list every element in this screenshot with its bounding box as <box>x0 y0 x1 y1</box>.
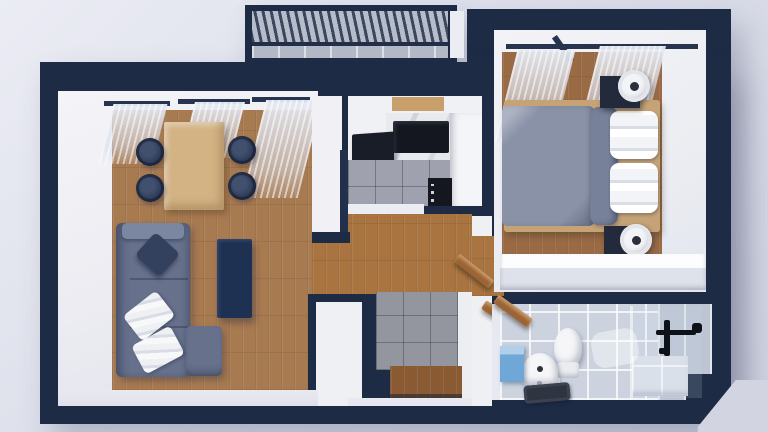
dining-table <box>164 122 224 210</box>
white-pillow-stack <box>610 111 658 159</box>
balcony-door-threshold <box>392 97 444 111</box>
sofa-seam <box>130 278 188 280</box>
sofa-chaise <box>186 326 222 376</box>
living-kitchen-wall <box>312 96 342 236</box>
balcony-floor <box>252 46 448 58</box>
dining-chair <box>136 174 164 202</box>
bedroom-dresser <box>500 254 706 290</box>
dining-chair <box>228 172 256 200</box>
living-room-south-wall-face <box>58 390 318 406</box>
balcony-pergola-roof <box>252 11 448 44</box>
apartment-floorplan-render <box>0 0 768 432</box>
balcony-side-wall <box>450 11 464 58</box>
shower-mixer-handle <box>659 348 669 354</box>
entry-doormat <box>390 366 462 398</box>
dining-chair <box>228 136 256 164</box>
bathroom-left-wall-face <box>492 304 500 400</box>
kitchen-south-ledge <box>348 204 424 214</box>
living-entry-wall-face <box>316 302 362 406</box>
entry-threshold <box>348 398 472 406</box>
round-fan <box>620 224 652 256</box>
shower-mixer-bar <box>656 330 696 335</box>
bed-duvet <box>502 106 594 226</box>
sink-drain <box>537 366 543 372</box>
shower-head <box>692 323 702 333</box>
toilet-base <box>557 362 579 378</box>
living-kitchen-wall-edge <box>340 150 348 236</box>
cooktop <box>393 121 449 153</box>
kitchen-right-counter <box>450 113 482 208</box>
round-fan <box>618 70 650 102</box>
entry-tile-floor <box>376 292 458 370</box>
white-pillow-stack <box>610 163 658 213</box>
coffee-table <box>217 239 252 318</box>
dining-chair <box>136 138 164 166</box>
laundry-box <box>500 346 524 382</box>
wall-cap <box>312 232 350 243</box>
